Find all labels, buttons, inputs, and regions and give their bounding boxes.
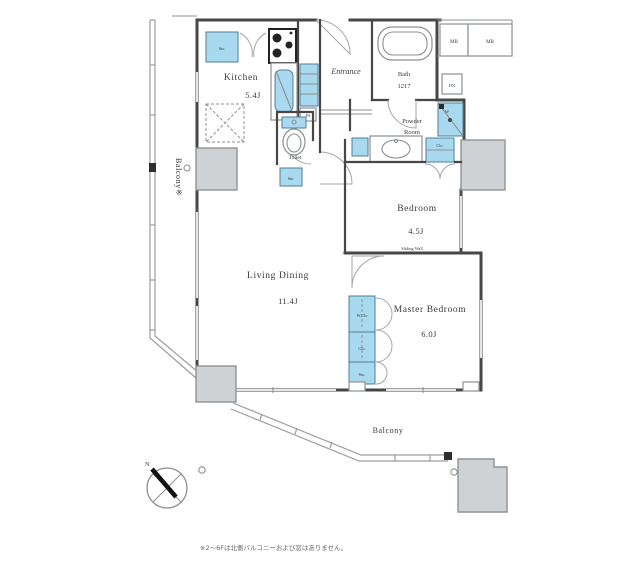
hall-storage-label: Sto. [288,176,295,181]
toilet-label: Toilet [289,155,302,161]
meter-box-1-label: MB [450,40,458,45]
living-dining-label: Living Dining [247,271,309,281]
refrigerator-cross [206,104,244,142]
sliding-wall-label: Sliding Wall [401,246,423,251]
master-door-arc [352,256,384,288]
bath-size: 1217 [398,83,412,90]
bedroom-size: 4.5J [408,226,424,236]
floor-plan-drawing: Balcony※ MB MB DN Sto. [0,0,640,569]
bottom-balcony-label: Balcony [373,426,404,435]
toilet-tank [282,117,306,128]
compass: N [145,461,187,508]
footnote: ※2〜6Fは北側バルコニーおよび窓はありません。 [200,543,347,552]
hall-to-living-door-arc [320,152,352,184]
washer-drain [448,118,452,122]
balcony-drain-3-icon [451,469,457,475]
living-dining: Living Dining 11.4J [247,271,309,306]
pillar-east [461,140,505,190]
living-dining-size: 11.4J [278,296,298,306]
service-area: MB MB DN [437,20,512,94]
pillar-southeast [458,459,507,512]
wall-stub-2 [463,382,479,391]
walk-in-closet-label: W.Clo [357,313,368,318]
master-bedroom-label: Master Bedroom [394,305,467,315]
storage-label: Sto. [359,372,366,377]
entrance: PS Entrance [300,20,372,121]
left-balcony-rail-outer [150,20,196,378]
balcony-drain-icon [184,165,190,171]
balcony-drain-2-icon [199,467,205,473]
bathroom: Bath 1217 [372,27,437,128]
left-balcony: Balcony※ [149,16,199,378]
left-balcony-label: Balcony※ [174,158,183,196]
burner-3 [286,42,293,49]
entrance-label: Entrance [330,67,361,76]
rail-post [149,163,156,172]
entrance-step [320,110,372,114]
burner-2 [273,49,282,58]
stove-knob [290,32,293,35]
meter-box-2-label: MB [486,40,494,45]
bath-label: Bath [398,71,411,78]
powder-cabinet [352,138,368,156]
master-bedroom-size: 6.0J [421,329,437,339]
burner-1 [273,34,282,43]
shoe-cabinet [300,64,318,106]
bedroom-label: Bedroom [397,204,437,214]
linen-closet-label: Clo. [436,143,443,148]
powder-room-label-1: Powder [402,118,423,125]
master-bedroom: W.Clo Clo. Sto. Master Bedroom 6.0J [349,256,479,391]
kitchen-size: 5.4J [245,90,261,100]
closet-label: Clo. [358,346,365,351]
toilet-icon [283,129,305,155]
pillar-southwest [196,366,236,402]
kitchen-storage-label: Sto. [219,46,226,51]
bottom-rail-inner [231,409,448,461]
east-wall-master [461,253,481,390]
left-balcony-rail-inner [155,20,199,373]
powder-west-walls [345,100,350,162]
bottom-rail-ticks [260,414,430,461]
toilet-room: Toilet Sto. [277,112,313,186]
kitchen-label: Kitchen [224,73,258,83]
east-windows [461,196,481,358]
compass-north-label: N [145,461,150,468]
floor-plan: Balcony※ MB MB DN Sto. [0,0,640,569]
powder-room-label-2: Room [404,129,420,136]
bottom-rail-outer [233,403,448,455]
washer-tap [439,104,444,109]
kitchen: Sto. Kitchen 5.4J [196,20,298,190]
bedroom-double-door-arcs [425,164,455,179]
closet-folding-doors [376,298,392,384]
rail-end-post [444,452,452,460]
pillar-northwest [196,148,237,190]
left-balcony-rail-ticks [150,20,155,330]
cabinet-door-arcs [240,33,266,57]
stair-down-label: DN [449,83,455,88]
wall-stub-1 [349,382,365,391]
hallway [320,20,352,184]
